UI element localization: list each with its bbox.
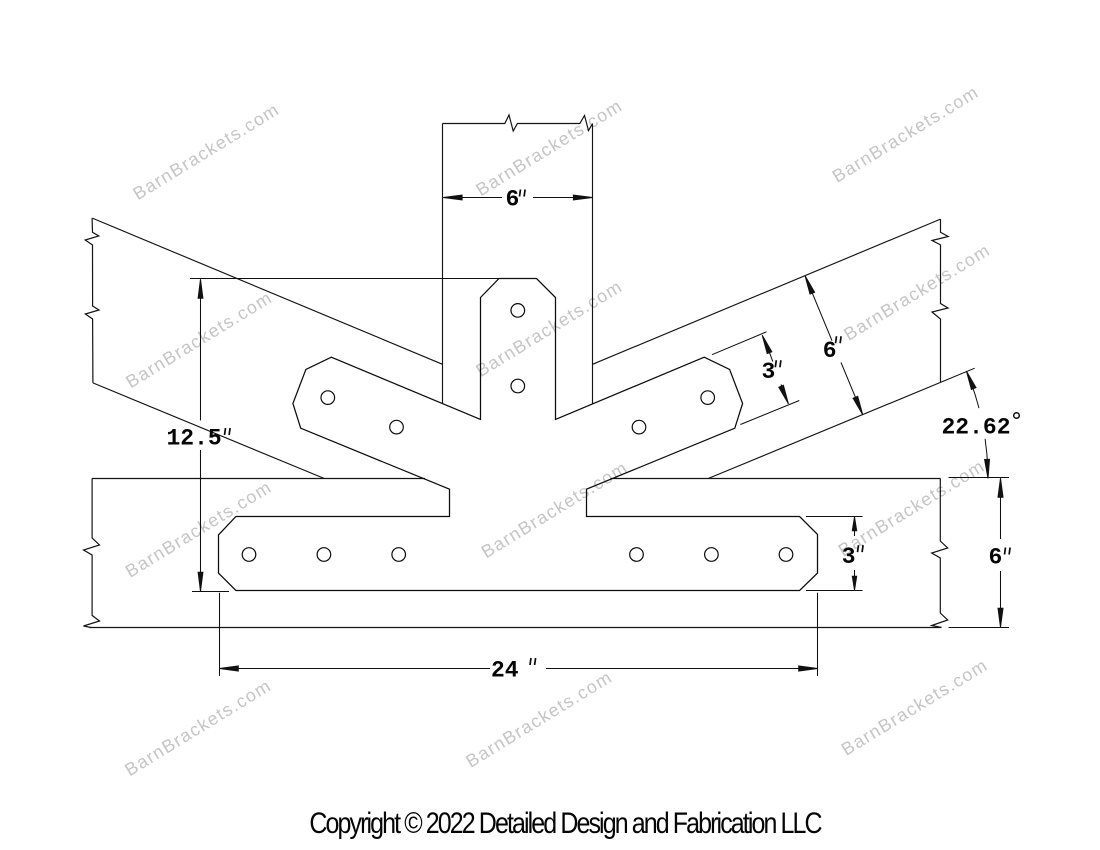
- svg-text:3: 3: [762, 359, 776, 385]
- svg-text:BarnBrackets.com: BarnBrackets.com: [462, 667, 616, 772]
- svg-text:BarnBrackets.com: BarnBrackets.com: [835, 456, 989, 561]
- svg-text:BarnBrackets.com: BarnBrackets.com: [838, 655, 992, 760]
- svg-text:12.5: 12.5: [167, 426, 222, 452]
- svg-text:BarnBrackets.com: BarnBrackets.com: [129, 99, 283, 204]
- svg-text:24: 24: [491, 658, 519, 684]
- svg-text:6: 6: [989, 545, 1003, 571]
- svg-text:BarnBrackets.com: BarnBrackets.com: [122, 477, 276, 582]
- svg-text:BarnBrackets.com: BarnBrackets.com: [122, 287, 276, 392]
- svg-text:BarnBrackets.com: BarnBrackets.com: [121, 675, 275, 780]
- svg-text:BarnBrackets.com: BarnBrackets.com: [472, 95, 626, 200]
- svg-text:3: 3: [842, 544, 856, 570]
- svg-text:BarnBrackets.com: BarnBrackets.com: [478, 457, 632, 562]
- svg-text:BarnBrackets.com: BarnBrackets.com: [840, 240, 994, 345]
- svg-text:6: 6: [506, 186, 520, 212]
- svg-text:BarnBrackets.com: BarnBrackets.com: [829, 82, 983, 187]
- svg-text:22.62: 22.62: [942, 414, 1011, 440]
- svg-text:Copyright © 2022 Detailed Desi: Copyright © 2022 Detailed Design and Fab…: [309, 806, 822, 839]
- svg-text:6: 6: [823, 338, 837, 364]
